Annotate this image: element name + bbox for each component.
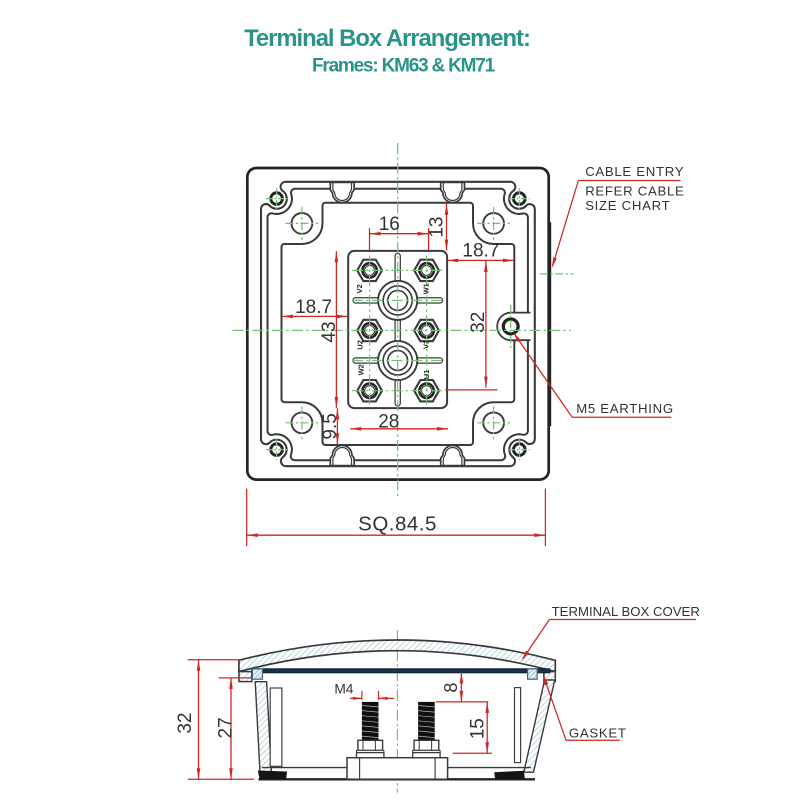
svg-text:M4: M4 (334, 682, 353, 697)
svg-text:28: 28 (378, 411, 399, 432)
svg-text:W1: W1 (422, 283, 431, 294)
svg-text:M5 EARTHING: M5 EARTHING (576, 401, 674, 416)
svg-text:Terminal Box Arrangement:: Terminal Box Arrangement: (244, 25, 530, 52)
svg-text:V2: V2 (355, 284, 364, 293)
svg-text:Frames: KM63 & KM71: Frames: KM63 & KM71 (312, 56, 496, 77)
svg-text:TERMINAL BOX COVER: TERMINAL BOX COVER (552, 604, 700, 619)
svg-text:15: 15 (468, 718, 489, 739)
svg-text:18.7: 18.7 (462, 241, 499, 262)
svg-text:SIZE CHART: SIZE CHART (585, 198, 670, 213)
svg-text:REFER CABLE: REFER CABLE (585, 183, 684, 198)
svg-text:32: 32 (175, 712, 196, 733)
svg-text:V1: V1 (422, 340, 431, 349)
svg-text:9.5: 9.5 (320, 413, 341, 439)
svg-text:GASKET: GASKET (569, 726, 627, 741)
svg-text:27: 27 (216, 717, 237, 738)
svg-text:SQ.84.5: SQ.84.5 (358, 513, 437, 536)
svg-text:32: 32 (468, 312, 489, 333)
svg-text:18.7: 18.7 (295, 297, 332, 318)
svg-text:W2: W2 (357, 364, 366, 375)
svg-text:U2: U2 (355, 340, 364, 350)
svg-text:43: 43 (319, 321, 340, 342)
svg-text:13: 13 (427, 217, 448, 238)
svg-text:U1: U1 (422, 370, 431, 380)
svg-text:CABLE ENTRY: CABLE ENTRY (585, 164, 684, 179)
svg-text:16: 16 (379, 214, 400, 235)
svg-text:8: 8 (441, 683, 461, 693)
